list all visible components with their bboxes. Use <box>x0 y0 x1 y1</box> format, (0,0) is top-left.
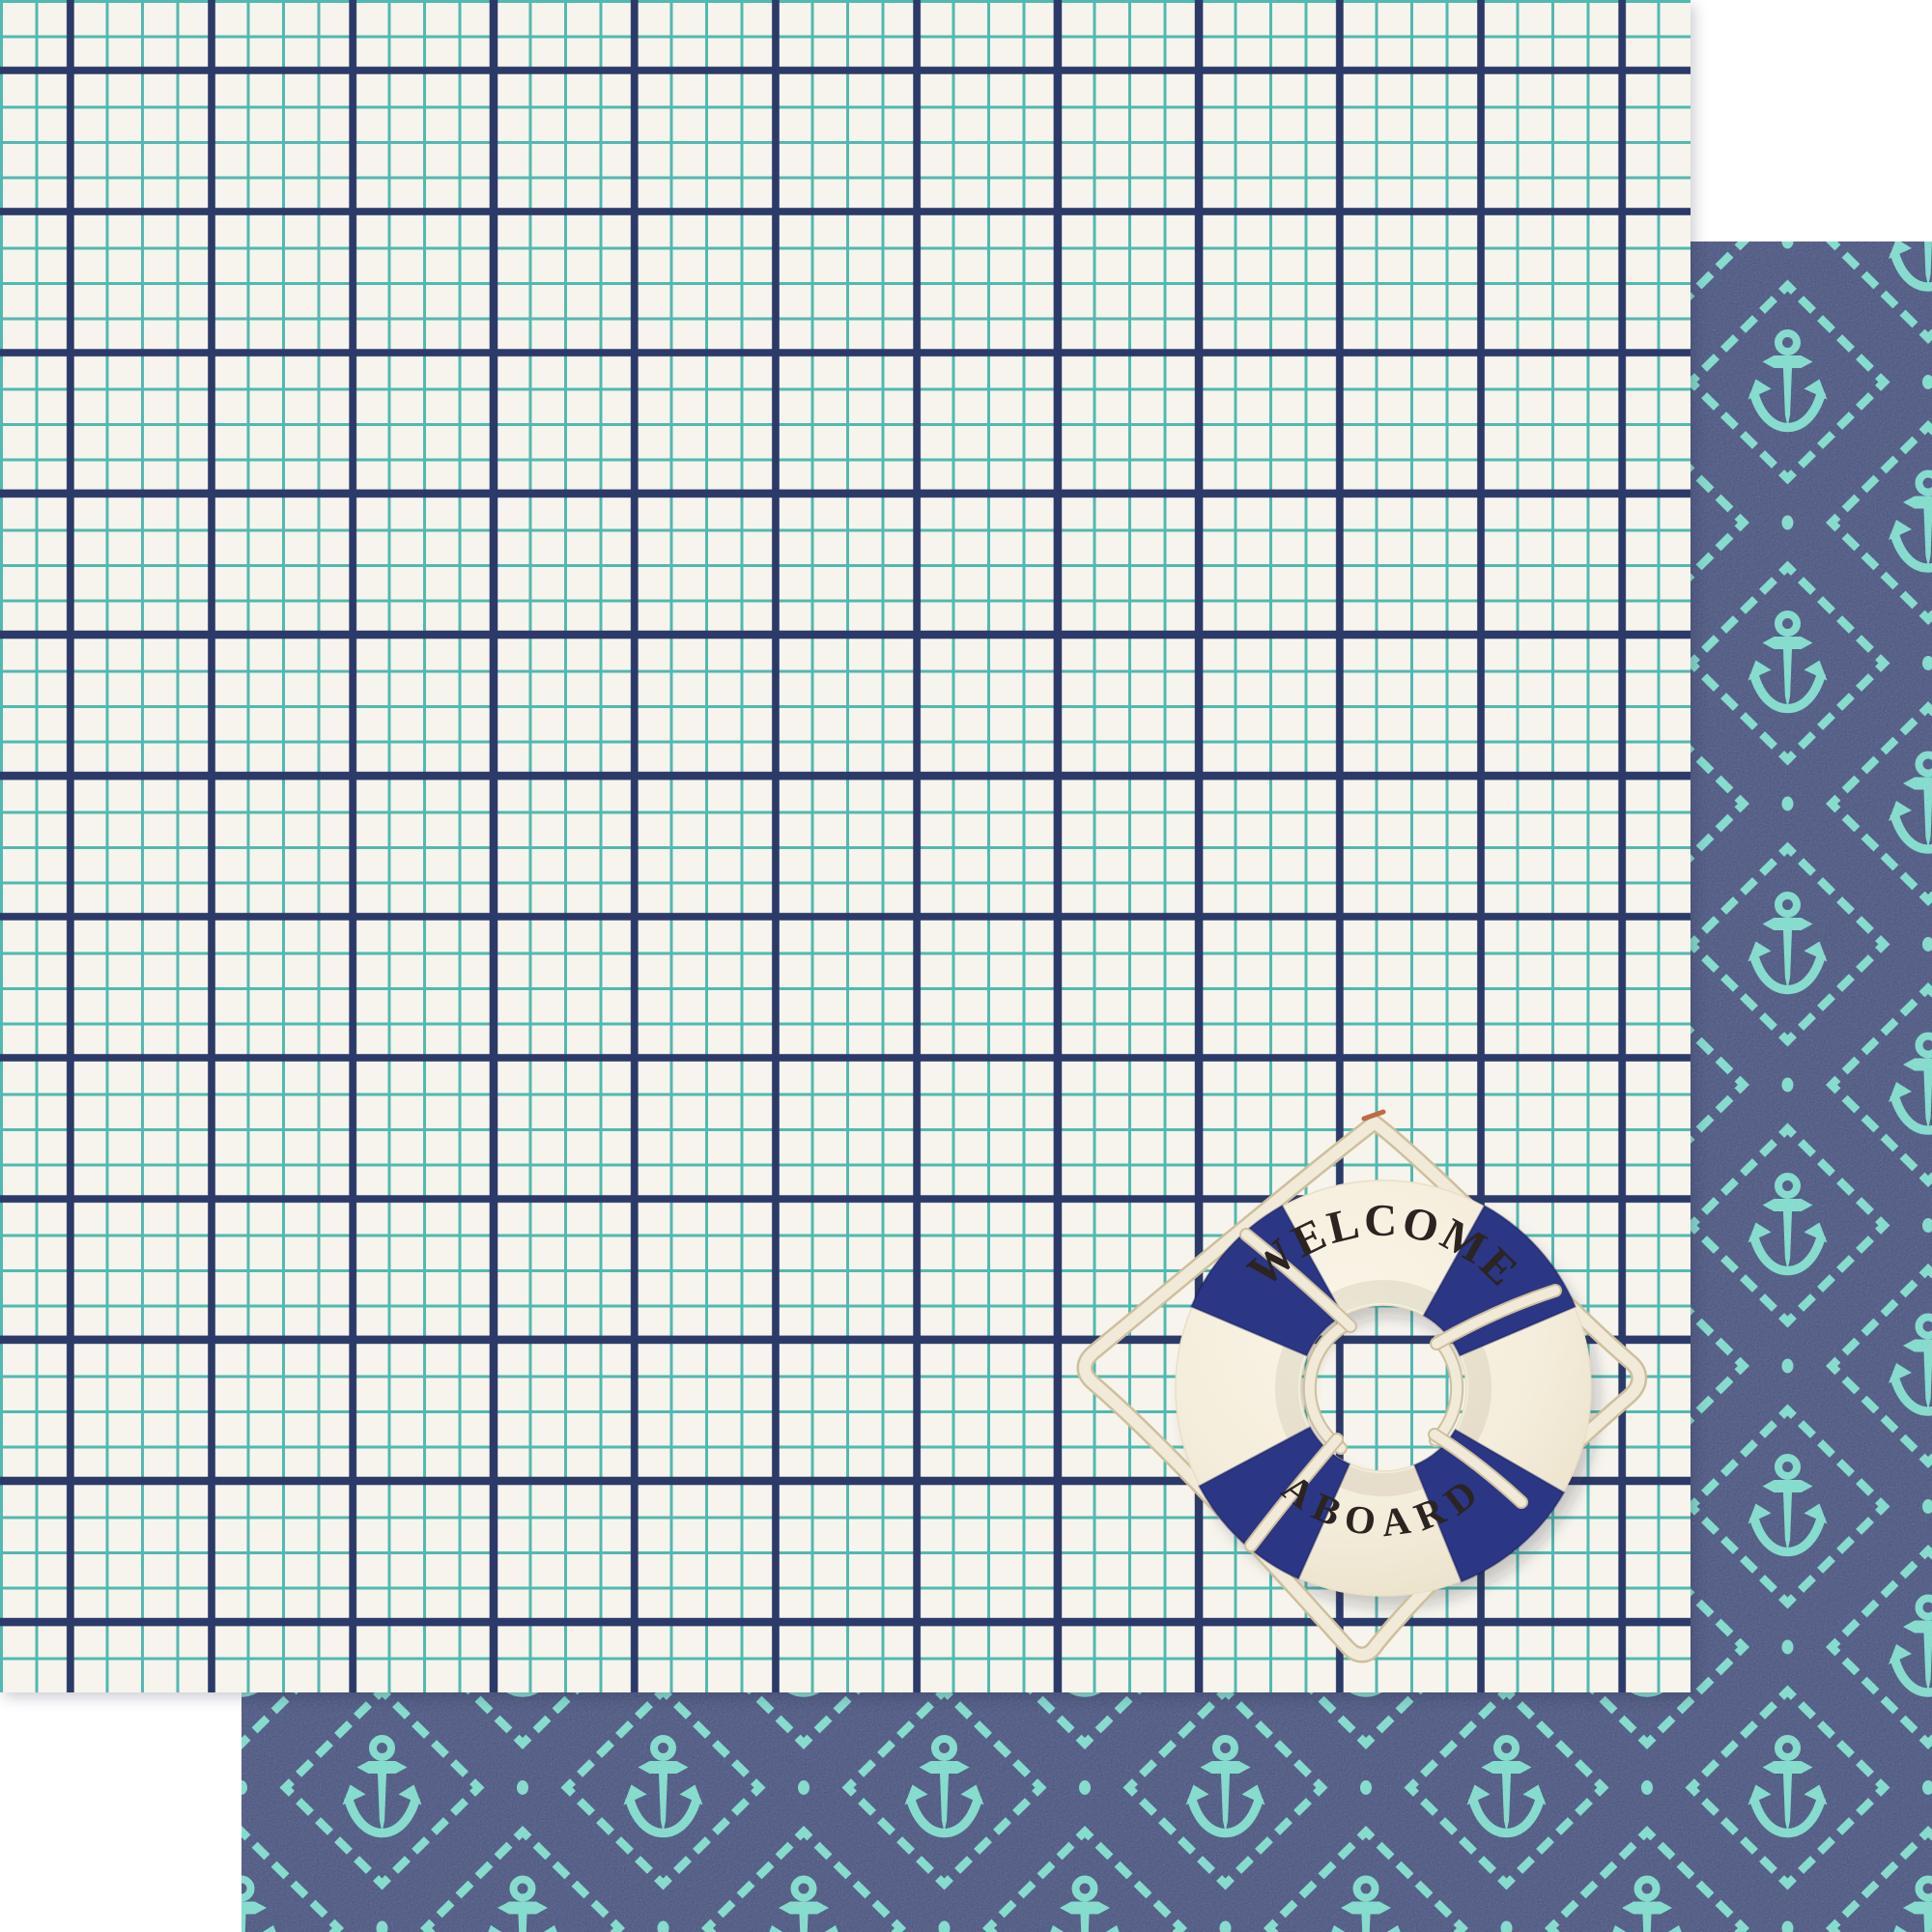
front-paper-grid: WELCOME ABOARD <box>0 0 1690 1692</box>
scrapbook-paper-product-photo: WELCOME ABOARD <box>0 0 1932 1932</box>
life-ring-photo: WELCOME ABOARD <box>0 0 1690 1692</box>
